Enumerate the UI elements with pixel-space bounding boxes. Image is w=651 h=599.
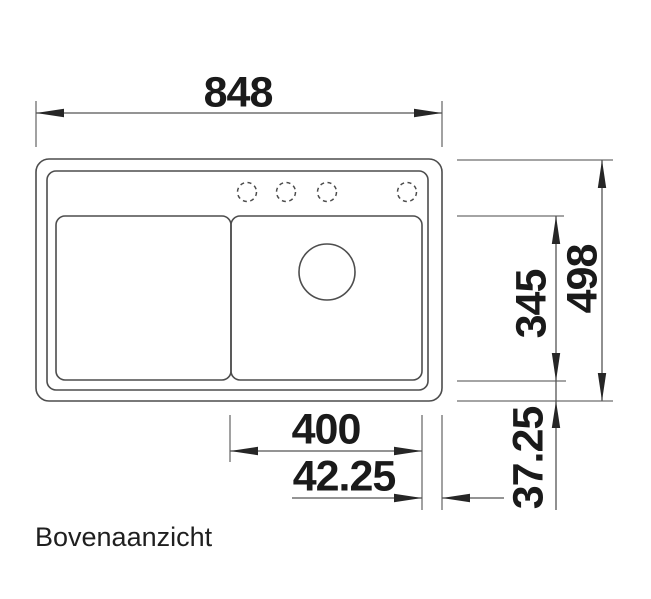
sink-rim bbox=[47, 171, 428, 390]
dim-overall-depth-label: 498 bbox=[562, 245, 605, 314]
dim-bottom-offset-label: 37.25 bbox=[508, 407, 551, 510]
arrow-4225-left-icon bbox=[442, 494, 470, 502]
right-basin bbox=[231, 216, 422, 380]
arrow-400-left-icon bbox=[230, 447, 258, 455]
arrow-498-top-icon bbox=[598, 160, 606, 188]
arrow-848-right-icon bbox=[414, 109, 442, 117]
drawing-canvas: 848 400 42.25 498 345 37.25 Bovenaanzich… bbox=[0, 0, 651, 599]
view-label: Bovenaanzicht bbox=[35, 522, 212, 553]
arrow-498-bottom-icon bbox=[598, 373, 606, 401]
tap-hole-1-icon bbox=[238, 183, 257, 202]
arrow-345-bottom-icon bbox=[552, 353, 560, 381]
left-basin bbox=[56, 216, 231, 380]
dim-basin-depth-label: 345 bbox=[511, 270, 554, 339]
sink-outer-edge bbox=[36, 159, 442, 401]
arrow-848-left-icon bbox=[36, 109, 64, 117]
tap-hole-3-icon bbox=[318, 183, 337, 202]
arrow-400-right-icon bbox=[394, 447, 422, 455]
arrow-3725-up-icon bbox=[552, 401, 560, 428]
arrow-4225-right-icon bbox=[394, 494, 422, 502]
dim-basin-width-label: 400 bbox=[292, 409, 361, 452]
tap-hole-2-icon bbox=[277, 183, 296, 202]
drain-circle bbox=[299, 244, 355, 300]
arrow-345-top-icon bbox=[552, 216, 560, 244]
tap-hole-4-icon bbox=[398, 183, 417, 202]
dim-overall-width-label: 848 bbox=[204, 72, 273, 115]
dim-right-offset-label: 42.25 bbox=[293, 456, 396, 499]
